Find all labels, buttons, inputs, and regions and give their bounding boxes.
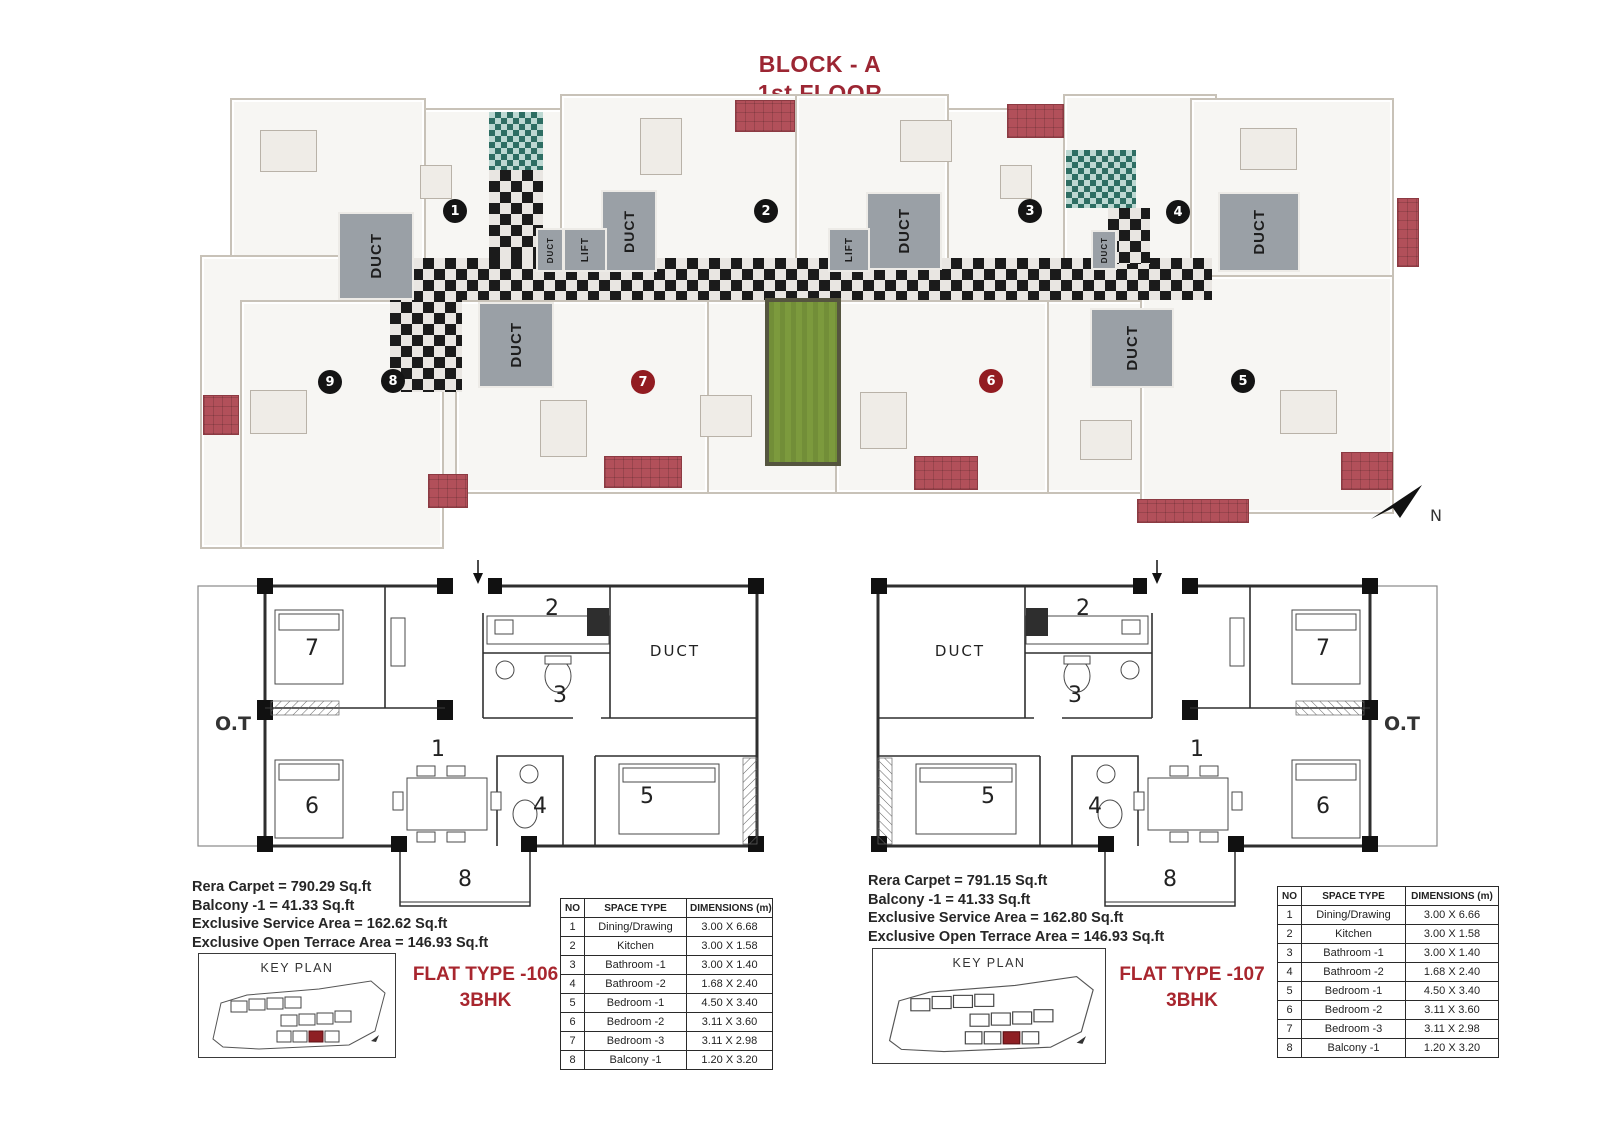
flat-107-plan: DUCT 2 3 7 O.T 5 4 1 6 8 (870, 558, 1440, 920)
col-space-type: SPACE TYPE (1302, 887, 1406, 906)
duct-label: DUCT (1124, 325, 1141, 371)
stat-line: Rera Carpet = 790.29 Sq.ft (192, 878, 488, 897)
unit-number: 9 (325, 375, 334, 390)
table-header-row: NO SPACE TYPE DIMENSIONS (m) (1278, 887, 1499, 906)
duct-label: DUCT (650, 642, 700, 660)
key-plan-map (873, 970, 1105, 1056)
cell-no: 5 (561, 994, 585, 1013)
table-row: 4 Bathroom -2 1.68 X 2.40 (561, 975, 773, 994)
teal-tile-floor (1066, 150, 1136, 208)
room-7-label: 7 (1316, 636, 1330, 661)
room-5-label: 5 (981, 784, 995, 809)
cell-space-type: Bathroom -1 (585, 956, 687, 975)
stat-line: Balcony -1 = 41.33 Sq.ft (868, 891, 1164, 910)
duct-label: DUCT (368, 233, 385, 279)
cell-no: 4 (561, 975, 585, 994)
unit-badge-1: 1 (443, 199, 467, 223)
cell-space-type: Dining/Drawing (585, 918, 687, 937)
table-header-row: NO SPACE TYPE DIMENSIONS (m) (561, 899, 773, 918)
flat-106-stats: Rera Carpet = 790.29 Sq.ftBalcony -1 = 4… (192, 878, 488, 952)
open-terrace-label: O.T (1384, 713, 1420, 735)
terrace-block (604, 456, 682, 488)
cell-dimensions: 3.00 X 1.58 (1406, 925, 1499, 944)
cell-space-type: Bedroom -1 (585, 994, 687, 1013)
cell-space-type: Bedroom -2 (1302, 1001, 1406, 1020)
unit-badge-6: 6 (979, 369, 1003, 393)
duct-label: DUCT (935, 642, 985, 660)
duct-label: DUCT (546, 237, 555, 263)
open-terrace-label: O.T (215, 713, 251, 735)
cell-no: 2 (1278, 925, 1302, 944)
terrace-block (735, 100, 795, 132)
room-3-label: 3 (1068, 683, 1082, 708)
stat-line: Exclusive Open Terrace Area = 146.93 Sq.… (868, 928, 1164, 947)
cell-no: 6 (1278, 1001, 1302, 1020)
cell-space-type: Balcony -1 (585, 1051, 687, 1070)
table-row: 2 Kitchen 3.00 X 1.58 (1278, 925, 1499, 944)
terrace-block (914, 456, 978, 490)
furniture-hint (1000, 165, 1032, 199)
col-dimensions: DIMENSIONS (m) (1406, 887, 1499, 906)
cell-space-type: Dining/Drawing (1302, 906, 1406, 925)
furniture-hint (640, 118, 682, 175)
furniture-hint (860, 392, 907, 449)
room-8-label: 8 (1163, 867, 1177, 892)
cell-space-type: Kitchen (1302, 925, 1406, 944)
table-row: 3 Bathroom -1 3.00 X 1.40 (1278, 944, 1499, 963)
furniture-hint (420, 165, 452, 199)
cell-no: 1 (561, 918, 585, 937)
table-row: 7 Bedroom -3 3.11 X 2.98 (1278, 1020, 1499, 1039)
key-plan-title: KEY PLAN (873, 949, 1105, 970)
cell-dimensions: 4.50 X 3.40 (687, 994, 773, 1013)
north-label: N (1430, 506, 1442, 525)
cell-dimensions: 1.68 X 2.40 (1406, 963, 1499, 982)
furniture-hint (900, 120, 952, 162)
cell-no: 6 (561, 1013, 585, 1032)
col-space-type: SPACE TYPE (585, 899, 687, 918)
cell-no: 7 (1278, 1020, 1302, 1039)
duct-shaft: DUCT (1090, 308, 1174, 388)
duct-shaft: DUCT (536, 228, 564, 272)
teal-tile-floor (489, 112, 543, 170)
flat-type: FLAT TYPE -106 (408, 962, 563, 988)
cell-dimensions: 3.11 X 2.98 (1406, 1020, 1499, 1039)
col-no: NO (561, 899, 585, 918)
cell-dimensions: 3.00 X 1.58 (687, 937, 773, 956)
cell-space-type: Bathroom -1 (1302, 944, 1406, 963)
flat-106-plan: 7 2 DUCT 3 O.T 1 4 5 6 8 (195, 558, 765, 920)
table-row: 7 Bedroom -3 3.11 X 2.98 (561, 1032, 773, 1051)
duct-label: DUCT (508, 322, 525, 368)
cell-space-type: Balcony -1 (1302, 1039, 1406, 1058)
unit-number: 6 (986, 374, 995, 389)
furniture-hint (250, 390, 307, 434)
cell-dimensions: 4.50 X 3.40 (1406, 982, 1499, 1001)
duct-shaft: DUCT (601, 190, 657, 272)
table-row: 5 Bedroom -1 4.50 X 3.40 (1278, 982, 1499, 1001)
unit-number: 4 (1173, 205, 1182, 220)
room-6-label: 6 (305, 794, 319, 819)
unit-number: 2 (761, 204, 770, 219)
table-row: 1 Dining/Drawing 3.00 X 6.68 (561, 918, 773, 937)
flat-bhk: 3BHK (408, 988, 563, 1014)
table-row: 3 Bathroom -1 3.00 X 1.40 (561, 956, 773, 975)
room-6-label: 6 (1316, 794, 1330, 819)
stat-line: Exclusive Service Area = 162.80 Sq.ft (868, 909, 1164, 928)
key-plan-map (199, 975, 395, 1053)
courtyard-lawn (765, 298, 841, 466)
flat-type: FLAT TYPE -107 (1112, 962, 1272, 988)
room-1-label: 1 (1190, 737, 1204, 762)
cell-no: 4 (1278, 963, 1302, 982)
cell-space-type: Bedroom -3 (585, 1032, 687, 1051)
flat-bhk: 3BHK (1112, 988, 1272, 1014)
furniture-hint (700, 395, 752, 437)
duct-shaft: DUCT (338, 212, 414, 300)
room-7-label: 7 (305, 636, 319, 661)
cell-dimensions: 3.11 X 3.60 (1406, 1001, 1499, 1020)
duct-shaft: DUCT (1091, 230, 1117, 270)
unit-badge-8: 8 (381, 369, 405, 393)
table-row: 1 Dining/Drawing 3.00 X 6.66 (1278, 906, 1499, 925)
table-row: 8 Balcony -1 1.20 X 3.20 (1278, 1039, 1499, 1058)
cell-dimensions: 1.20 X 3.20 (1406, 1039, 1499, 1058)
cell-dimensions: 3.00 X 1.40 (1406, 944, 1499, 963)
unit-number: 5 (1238, 374, 1247, 389)
stat-line: Balcony -1 = 41.33 Sq.ft (192, 897, 488, 916)
furniture-hint (1280, 390, 1337, 434)
cell-dimensions: 3.00 X 6.66 (1406, 906, 1499, 925)
room-4-label: 4 (533, 794, 547, 819)
cell-no: 8 (561, 1051, 585, 1070)
lift-shaft: LIFT (828, 228, 870, 272)
cell-no: 2 (561, 937, 585, 956)
table-row: 6 Bedroom -2 3.11 X 3.60 (561, 1013, 773, 1032)
lift-label: LIFT (580, 237, 591, 262)
corridor-checker-floor (489, 170, 543, 258)
unit-number: 7 (638, 375, 647, 390)
unit-number: 3 (1025, 204, 1034, 219)
lift-label: LIFT (844, 237, 855, 262)
table-row: 5 Bedroom -1 4.50 X 3.40 (561, 994, 773, 1013)
block-title: BLOCK - A (690, 50, 950, 79)
lift-shaft: LIFT (563, 228, 607, 272)
unit-badge-9: 9 (318, 370, 342, 394)
cell-space-type: Kitchen (585, 937, 687, 956)
duct-shaft: DUCT (478, 302, 554, 388)
room-5-label: 5 (640, 784, 654, 809)
flat-107-dimensions-table: NO SPACE TYPE DIMENSIONS (m) 1 Dining/Dr… (1277, 886, 1499, 1058)
cell-dimensions: 3.11 X 3.60 (687, 1013, 773, 1032)
terrace-block (1007, 104, 1064, 138)
cell-space-type: Bedroom -1 (1302, 982, 1406, 1001)
cell-no: 3 (561, 956, 585, 975)
cell-no: 8 (1278, 1039, 1302, 1058)
room-2-label: 2 (1076, 596, 1090, 621)
table-row: 2 Kitchen 3.00 X 1.58 (561, 937, 773, 956)
room-4-label: 4 (1088, 794, 1102, 819)
room-3-label: 3 (553, 683, 567, 708)
col-no: NO (1278, 887, 1302, 906)
flat-106-dimensions-table: NO SPACE TYPE DIMENSIONS (m) 1 Dining/Dr… (560, 898, 773, 1070)
north-arrow-icon: N (1368, 472, 1458, 526)
flat-107-key-plan: KEY PLAN (872, 948, 1106, 1064)
furniture-hint (540, 400, 587, 457)
duct-label: DUCT (621, 210, 637, 253)
stat-line: Exclusive Open Terrace Area = 146.93 Sq.… (192, 934, 488, 953)
col-dimensions: DIMENSIONS (m) (687, 899, 773, 918)
flat-107-stats: Rera Carpet = 791.15 Sq.ftBalcony -1 = 4… (868, 872, 1164, 946)
cell-no: 7 (561, 1032, 585, 1051)
cell-space-type: Bedroom -2 (585, 1013, 687, 1032)
cell-space-type: Bedroom -3 (1302, 1020, 1406, 1039)
table-row: 4 Bathroom -2 1.68 X 2.40 (1278, 963, 1499, 982)
stat-line: Exclusive Service Area = 162.62 Sq.ft (192, 915, 488, 934)
duct-label: DUCT (1251, 209, 1268, 255)
terrace-block (1397, 198, 1419, 267)
stat-line: Rera Carpet = 791.15 Sq.ft (868, 872, 1164, 891)
cell-no: 5 (1278, 982, 1302, 1001)
unit-badge-2: 2 (754, 199, 778, 223)
table-row: 6 Bedroom -2 3.11 X 3.60 (1278, 1001, 1499, 1020)
unit-number: 8 (388, 374, 397, 389)
duct-shaft: DUCT (1218, 192, 1300, 272)
unit-badge-5: 5 (1231, 369, 1255, 393)
cell-dimensions: 3.11 X 2.98 (687, 1032, 773, 1051)
unit-badge-3: 3 (1018, 199, 1042, 223)
room-2-label: 2 (545, 596, 559, 621)
furniture-hint (1080, 420, 1132, 460)
unit-badge-7: 7 (631, 370, 655, 394)
duct-label: DUCT (896, 208, 913, 254)
corridor-checker-floor (390, 258, 1212, 300)
duct-label: DUCT (1100, 237, 1109, 263)
floor-plan-sheet: BLOCK - A 1st FLOOR (0, 0, 1611, 1146)
cell-no: 1 (1278, 906, 1302, 925)
flat-107-type-label: FLAT TYPE -107 3BHK (1112, 962, 1272, 1013)
terrace-block (428, 474, 468, 508)
cell-dimensions: 1.68 X 2.40 (687, 975, 773, 994)
room-1-label: 1 (431, 737, 445, 762)
cell-space-type: Bathroom -2 (585, 975, 687, 994)
terrace-block (1137, 499, 1249, 523)
duct-shaft: DUCT (866, 192, 942, 270)
furniture-hint (1240, 128, 1297, 170)
terrace-block (203, 395, 239, 435)
unit-badge-4: 4 (1166, 200, 1190, 224)
table-row: 8 Balcony -1 1.20 X 3.20 (561, 1051, 773, 1070)
flat-106-type-label: FLAT TYPE -106 3BHK (408, 962, 563, 1013)
furniture-hint (260, 130, 317, 172)
cell-no: 3 (1278, 944, 1302, 963)
cell-dimensions: 3.00 X 1.40 (687, 956, 773, 975)
key-plan-title: KEY PLAN (199, 954, 395, 975)
flat-106-key-plan: KEY PLAN (198, 953, 396, 1058)
cell-dimensions: 3.00 X 6.68 (687, 918, 773, 937)
cell-dimensions: 1.20 X 3.20 (687, 1051, 773, 1070)
unit-number: 1 (450, 204, 459, 219)
cell-space-type: Bathroom -2 (1302, 963, 1406, 982)
